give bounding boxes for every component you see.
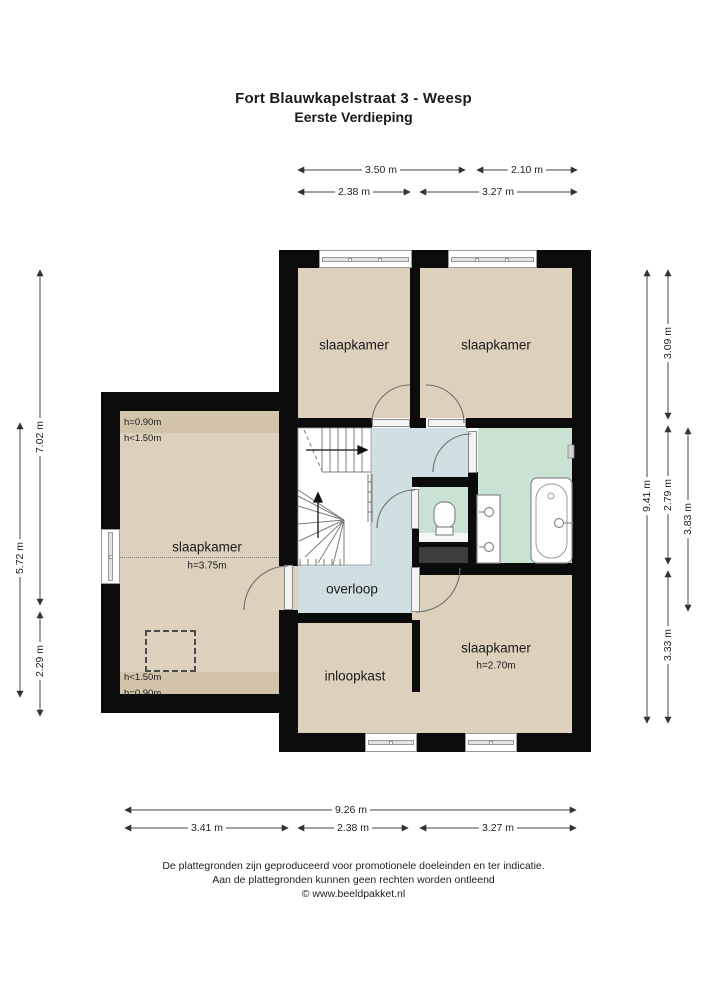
dimension-label: 7.02 m (34, 418, 46, 456)
dimension-label: 3.09 m (662, 324, 674, 362)
disclaimer-line-1: De plattegronden zijn geproduceerd voor … (0, 860, 707, 872)
dimension-label: 3.27 m (479, 186, 517, 198)
washbasin-icon (477, 495, 500, 563)
ceiling-height-label: h=2.70m (476, 661, 515, 672)
dimension-label: 3.27 m (479, 822, 517, 834)
door-arc (433, 434, 471, 472)
bathtub-icon (531, 478, 573, 563)
ceiling-height-label: h=3.75m (187, 561, 226, 572)
room-label-bedroom-top-left: slaapkamer (319, 338, 389, 353)
towel-radiator-icon (568, 445, 574, 458)
room-label-closet: inloopkast (325, 669, 386, 684)
dimension-label: 2.38 m (335, 186, 373, 198)
room-label-bedroom-top-right: slaapkamer (461, 338, 531, 353)
copyright-line: © www.beeldpakket.nl (0, 888, 707, 900)
dimension-label: 3.50 m (362, 164, 400, 176)
floorplan-page: Fort Blauwkapelstraat 3 - Weesp Eerste V… (0, 0, 707, 1000)
plan-overlay (0, 0, 707, 1000)
dimension-label: 2.29 m (34, 642, 46, 680)
dimension-label: 2.38 m (334, 822, 372, 834)
dimension-label: 5.72 m (14, 539, 26, 577)
door-arc (244, 566, 288, 610)
disclaimer-line-2: Aan de plattegronden kunnen geen rechten… (0, 874, 707, 886)
dimension-label: 3.41 m (188, 822, 226, 834)
room-label-bedroom-bottom-right: slaapkamer (461, 641, 531, 656)
dimension-label: 2.79 m (662, 476, 674, 514)
staircase (298, 428, 372, 566)
edge-height-label: h<1.50m (124, 672, 161, 683)
dimension-label: 3.83 m (682, 500, 694, 538)
dimension-label: 3.33 m (662, 626, 674, 664)
room-label-landing: overloop (326, 582, 378, 597)
dimension-label: 9.41 m (641, 477, 653, 515)
dimension-label: 9.26 m (332, 804, 370, 816)
door-arc (377, 490, 415, 528)
door-arc (426, 385, 464, 423)
toilet-icon (434, 502, 455, 535)
door-arc (372, 385, 410, 423)
dimension-label: 2.10 m (508, 164, 546, 176)
edge-height-label: h<1.50m (124, 433, 161, 444)
edge-height-label: h=0.90m (124, 688, 161, 699)
edge-height-label: h=0.90m (124, 417, 161, 428)
door-arc (416, 568, 460, 612)
room-label-bedroom-left-wing: slaapkamer (172, 540, 242, 555)
